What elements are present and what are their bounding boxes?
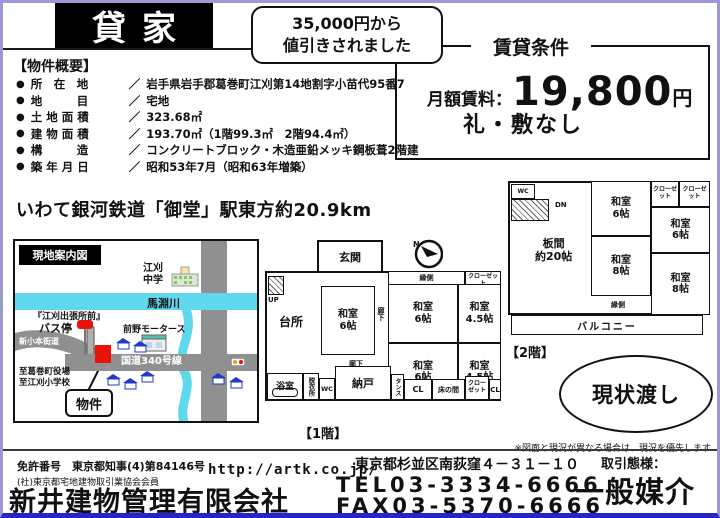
property-marker	[95, 345, 111, 363]
discount-line1: 35,000円から	[283, 13, 411, 35]
stairs-up-hatch	[268, 276, 284, 295]
company-name: 新井建物管理有限会社	[9, 480, 289, 518]
room-washitsu-3: 和室4.5帖	[458, 284, 501, 343]
room-storage: 納戸	[335, 366, 391, 400]
school-label: 江刈 中学	[143, 263, 163, 286]
overview-row: ● 所 在 地 ／ 岩手県岩手郡葛巻町江刈第14地割字小苗代95番7	[16, 76, 419, 93]
room2f-washitsu-3: 和室8帖	[591, 236, 651, 296]
footer-divider	[3, 449, 717, 451]
room-genkan: 玄関	[317, 240, 383, 273]
bullet-icon: ●	[16, 161, 25, 172]
stairs-dn-label: DN	[555, 201, 567, 209]
river-label: 馬淵川	[147, 295, 180, 311]
closet-2f-2: クローゼット	[679, 181, 710, 207]
page-title-text: 貸家	[92, 1, 192, 50]
separator: ／	[129, 93, 141, 109]
house-icon	[123, 378, 138, 390]
floor1-caption: 【1階】	[299, 423, 347, 442]
bus-stop-pole	[84, 329, 86, 355]
stairs-dn-hatch	[511, 199, 549, 221]
closet-bottom: クローゼット	[465, 376, 489, 400]
deal-type: 一般媒介	[575, 469, 695, 511]
separator: ／	[129, 159, 141, 175]
house-icon	[106, 374, 121, 386]
page-title: 貸家	[55, 3, 213, 48]
separator: ／	[129, 126, 141, 142]
conditions-title: 賃貸条件	[471, 33, 591, 60]
room2f-washitsu-1: 和室6帖	[591, 181, 651, 236]
school-icon	[171, 265, 199, 287]
bus-stop-label: バス停	[39, 320, 72, 336]
engawa-strip: 縁側	[388, 271, 465, 285]
room-kitchen-label: 台所	[279, 313, 303, 330]
room2f-washitsu-4: 和室8帖	[651, 253, 710, 315]
separator: ／	[129, 76, 141, 92]
stairs-up-label: UP	[268, 296, 279, 304]
floorplan-1f: 玄関 UP 台所 和室6帖 廊下 縁側 クローゼット 和室6帖 和室4.5帖 和…	[261, 237, 503, 443]
flyer-page: 貸家 35,000円から 値引きされました 賃貸条件 月額賃料： 19,800 …	[0, 0, 720, 518]
corridor-vertical-label: 廊下	[376, 307, 386, 321]
to-school-label: 至江刈小学校	[19, 376, 70, 388]
discount-line2: 値引きされました	[283, 35, 411, 57]
site-map: 現地案内図 江刈 中学 馬淵川 『江刈出張所前』 バス停 前野モータース	[13, 239, 259, 423]
discount-callout: 35,000円から 値引きされました	[251, 6, 443, 64]
closet-2f-1: クローゼット	[651, 181, 679, 207]
floor2-caption: 【2階】	[506, 342, 554, 361]
overview-row: ● 土 地 面 積 ／ 323.68㎡	[16, 109, 419, 126]
rent-unit: 円	[672, 82, 692, 111]
room-dressing: 脱衣所	[303, 373, 319, 400]
bus-stop-icon	[77, 320, 93, 329]
balcony: バルコニー	[511, 315, 703, 335]
overview-row: ● 建 物 面 積 ／ 193.70㎡（1階99.3㎡ 2階94.4㎡）	[16, 126, 419, 143]
overview-row: ● 構 造 ／ コンクリートブロック・木造亜鉛メッキ鋼板葺2階建	[16, 142, 419, 159]
property-callout: 物件	[65, 389, 113, 417]
bathtub-icon	[272, 388, 298, 397]
house-icon	[133, 341, 148, 353]
as-is-badge: 現状渡し	[559, 355, 713, 433]
room-washitsu-1: 和室6帖	[321, 286, 375, 355]
map-title: 現地案内図	[19, 245, 101, 265]
house-icon	[140, 371, 155, 383]
tokonoma: 床の間	[432, 379, 465, 400]
room-wc-1f: WC	[319, 378, 335, 400]
separator: ／	[129, 142, 141, 158]
route-label: 国道340号線	[121, 357, 182, 367]
room2f-washitsu-2: 和室6帖	[651, 207, 710, 253]
bullet-icon: ●	[16, 112, 25, 123]
room-itanoma-label: 板間 約20帖	[535, 238, 572, 263]
room-bath: 浴室	[267, 373, 303, 400]
room-washitsu-2: 和室6帖	[388, 284, 458, 343]
phone-fax: FAX03-5370-6666	[336, 494, 604, 518]
old-road-label: 新小本街道	[19, 338, 59, 346]
bullet-icon: ●	[16, 145, 25, 156]
bullet-icon: ●	[16, 79, 25, 90]
engawa-2f-label: 縁側	[611, 300, 625, 310]
no-deposit: 礼・敷なし	[463, 107, 583, 139]
closet-tansu: タンス	[391, 374, 404, 400]
bullet-icon: ●	[16, 128, 25, 139]
closet-cl-2: CL	[489, 379, 501, 400]
house-icon	[229, 377, 244, 389]
company-address: 東京都杉並区南荻窪４－３１－１０	[355, 454, 579, 474]
overview-list: ● 所 在 地 ／ 岩手県岩手郡葛巻町江刈第14地割字小苗代95番7 ● 地 目…	[16, 76, 419, 175]
overview-heading: 【物件概要】	[13, 56, 97, 76]
room-wc-2f: WC	[511, 184, 535, 199]
overview-row: ● 築 年 月 日 ／ 昭和53年7月（昭和63年増築）	[16, 159, 419, 176]
closet-cl-1: CL	[404, 379, 432, 400]
house-icon	[211, 373, 226, 385]
bullet-icon: ●	[16, 95, 25, 106]
floorplan-2f: WC DN 板間 約20帖 和室6帖 クローゼット クローゼット 和室6帖 和室…	[505, 176, 715, 362]
separator: ／	[129, 109, 141, 125]
house-icon	[116, 338, 131, 350]
traffic-signal-icon	[231, 358, 245, 366]
access-line: いわて銀河鉄道「御堂」駅東方約20.9km	[16, 196, 372, 222]
overview-row: ● 地 目 ／ 宅地	[16, 93, 419, 110]
